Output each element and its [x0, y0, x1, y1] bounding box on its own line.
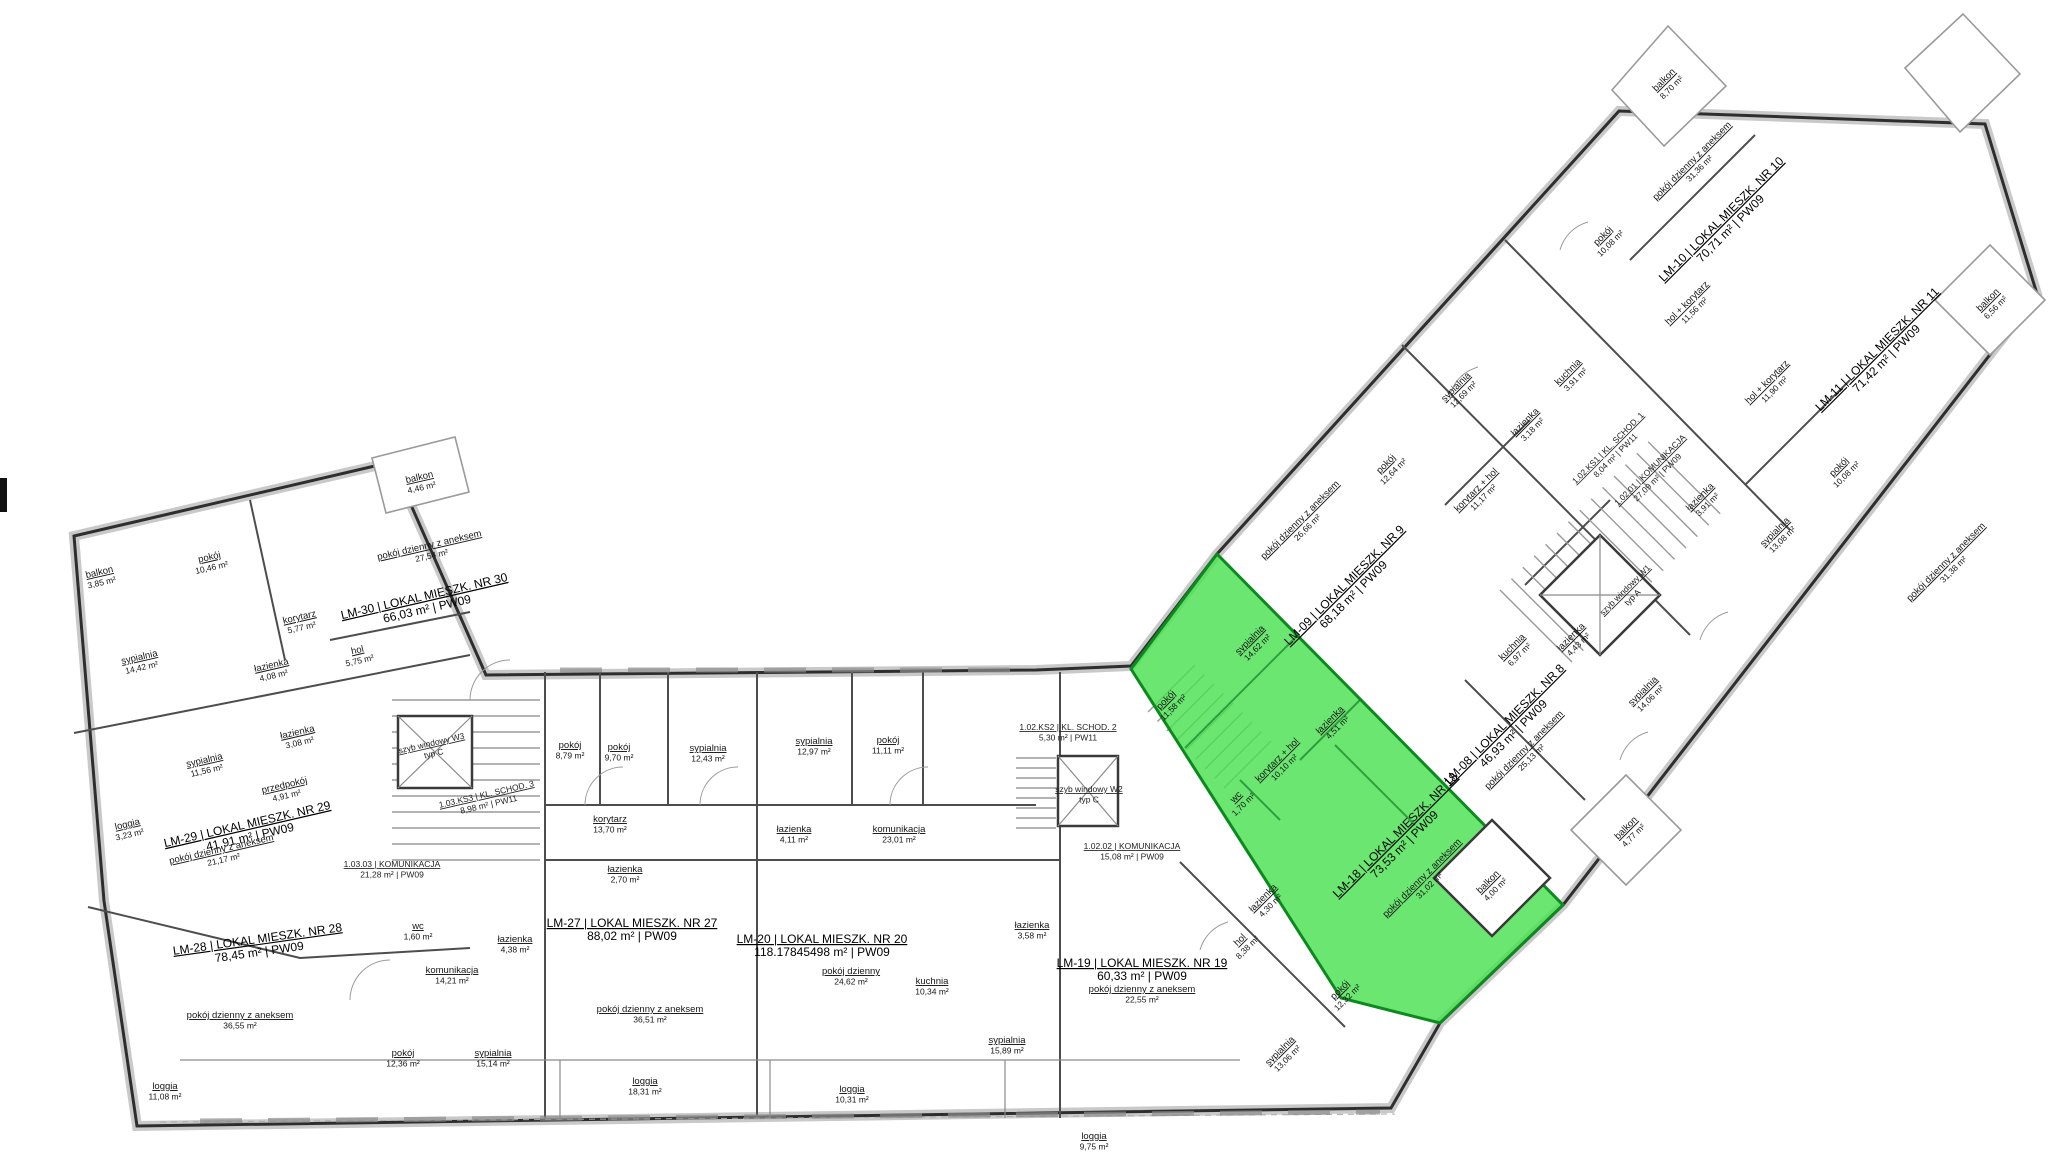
room-label: korytarz13,70 m² — [593, 814, 627, 835]
room-label: pokój dzienny z aneksem31,38 m² — [1905, 521, 1995, 611]
room-label: sypialnia15,89 m² — [989, 1035, 1027, 1056]
room-label: loggia18,31 m² — [628, 1076, 662, 1097]
room-label: łazienka4,38 m² — [498, 934, 534, 955]
edge-mark — [0, 478, 7, 512]
room-label: pokój9,70 m² — [605, 742, 634, 763]
room-label: sypialnia12,97 m² — [796, 736, 834, 757]
room-label: loggia9,75 m² — [1080, 1131, 1109, 1152]
room-label: loggia10,31 m² — [835, 1084, 869, 1105]
exterior-wall-halo — [74, 111, 2037, 1126]
unit-title-label: LM-20 | LOKAL MIESZK. NR 20118.17845498 … — [737, 932, 908, 959]
room-label: łazienka3,58 m² — [1015, 920, 1051, 941]
floor-plan-canvas: balkon3,85 m²pokój10,46 m²balkon4,46 m²p… — [0, 0, 2048, 1152]
floor-plan-drawing: balkon3,85 m²pokój10,46 m²balkon4,46 m²p… — [0, 0, 2048, 1152]
balcony-outline-top-right — [1905, 14, 2020, 132]
room-label: kuchnia10,34 m² — [915, 976, 949, 997]
room-label: łazienka2,70 m² — [608, 864, 644, 885]
room-label: sypialnia15,14 m² — [475, 1048, 513, 1069]
room-label: łazienka4,11 m² — [777, 824, 813, 845]
room-label: pokój8,79 m² — [556, 740, 585, 761]
room-label: loggia11,08 m² — [149, 1081, 182, 1102]
room-label: sypialnia12,43 m² — [690, 743, 728, 764]
